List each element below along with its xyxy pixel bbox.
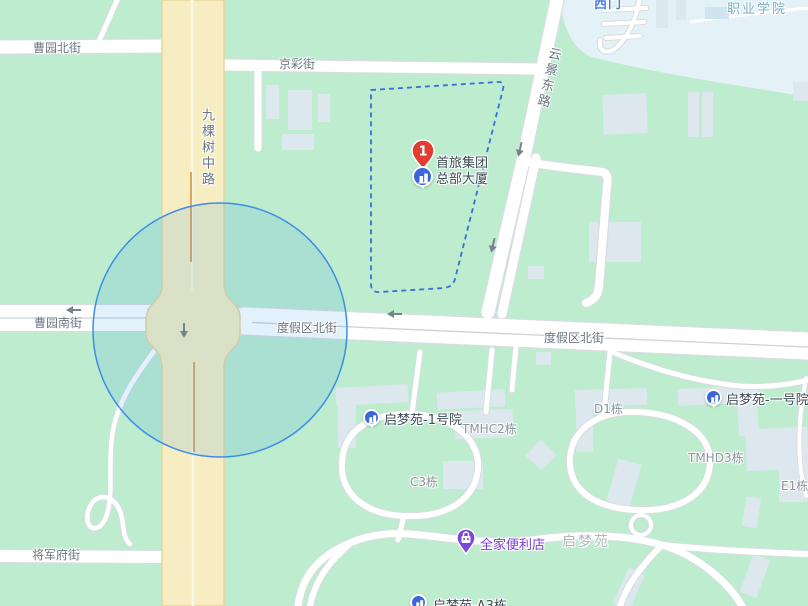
hq-poi-label[interactable]: 首旅集团 总部大厦: [436, 156, 488, 188]
poi-icon-qimengyuan-a3[interactable]: [410, 594, 427, 606]
radius-circle: [93, 203, 347, 457]
hq-poi-building-icon[interactable]: [412, 166, 433, 187]
shop-pin-icon[interactable]: [455, 528, 477, 556]
marker-rank: 1: [418, 145, 427, 160]
hq-poi-label-line1: 首旅集团: [436, 156, 488, 172]
map-canvas[interactable]: [0, 0, 808, 606]
poi-pin-familymart[interactable]: [455, 528, 477, 560]
hq-poi-label-line2: 总部大厦: [436, 172, 488, 188]
poi-label-qimengyuan-1-yuan[interactable]: 启梦苑-1号院: [384, 409, 462, 428]
poi-icon-qimengyuan-yihaoyuan[interactable]: [705, 389, 722, 406]
poi-label-qimengyuan-yihaoyuan[interactable]: 启梦苑-一号院: [726, 389, 808, 408]
map-viewport[interactable]: 曹园北街 京彩街 九棵树中路 云景东路 曹园南街 度假区北街 度假区北街 将军府…: [0, 0, 808, 606]
poi-label-qimengyuan-a3[interactable]: 启梦苑-A3栋: [433, 595, 507, 606]
poi-icon-qimengyuan-1-yuan[interactable]: [363, 409, 380, 426]
poi-label-familymart[interactable]: 全家便利店: [480, 534, 545, 553]
